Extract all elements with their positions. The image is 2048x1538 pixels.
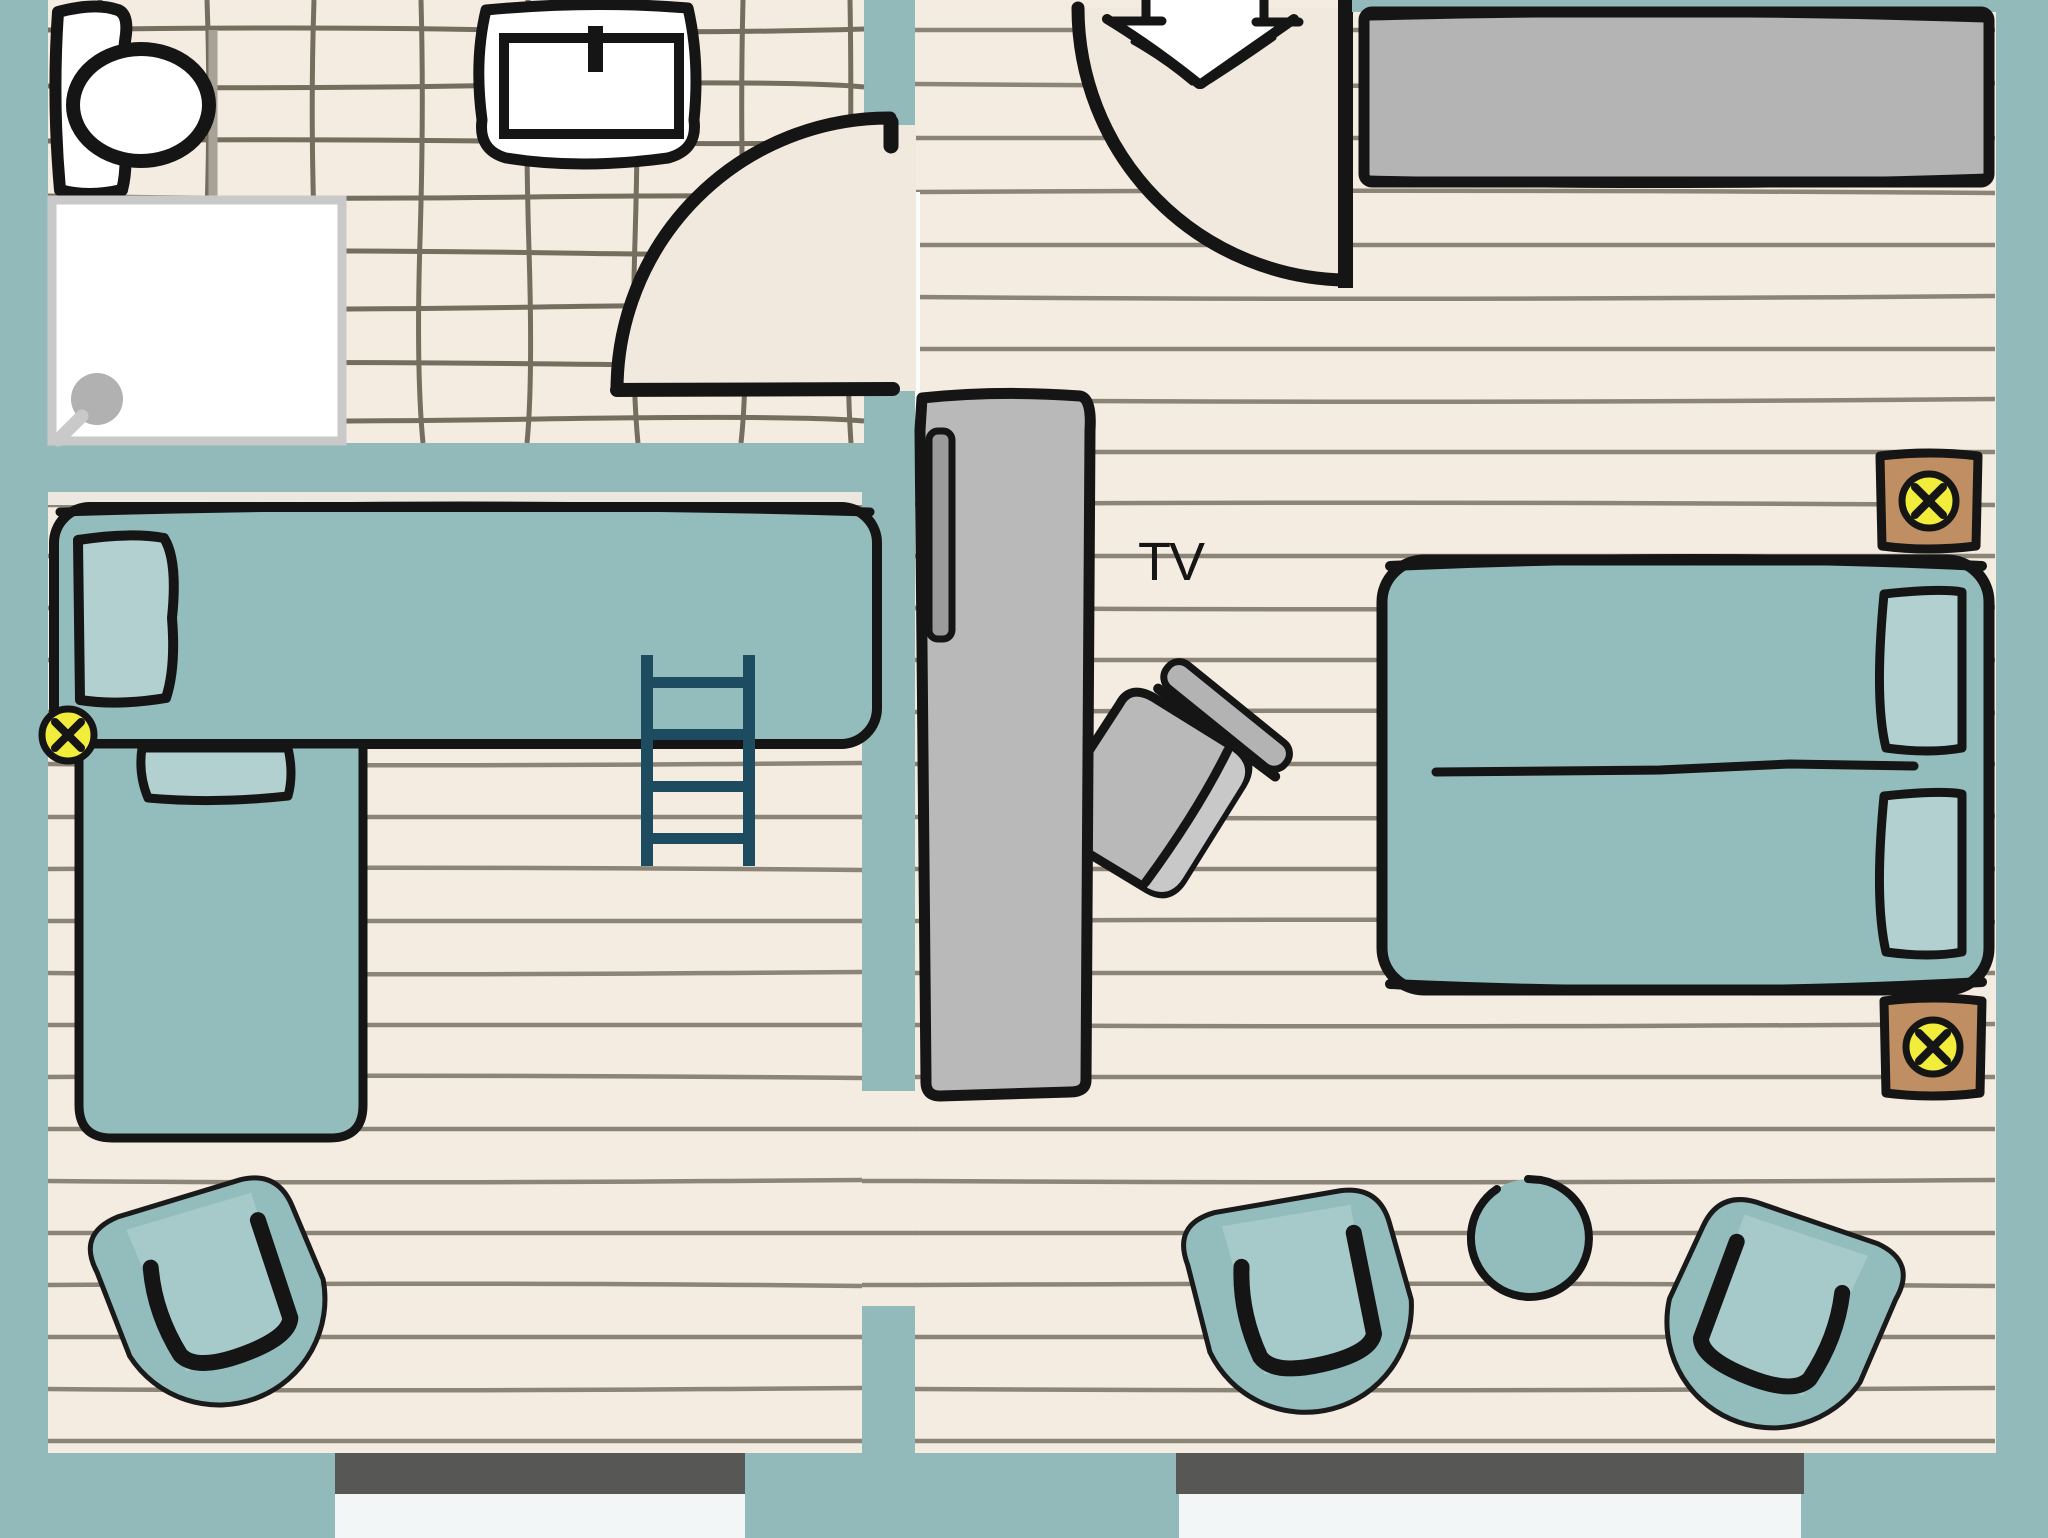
svg-text:TV: TV <box>1138 532 1205 592</box>
